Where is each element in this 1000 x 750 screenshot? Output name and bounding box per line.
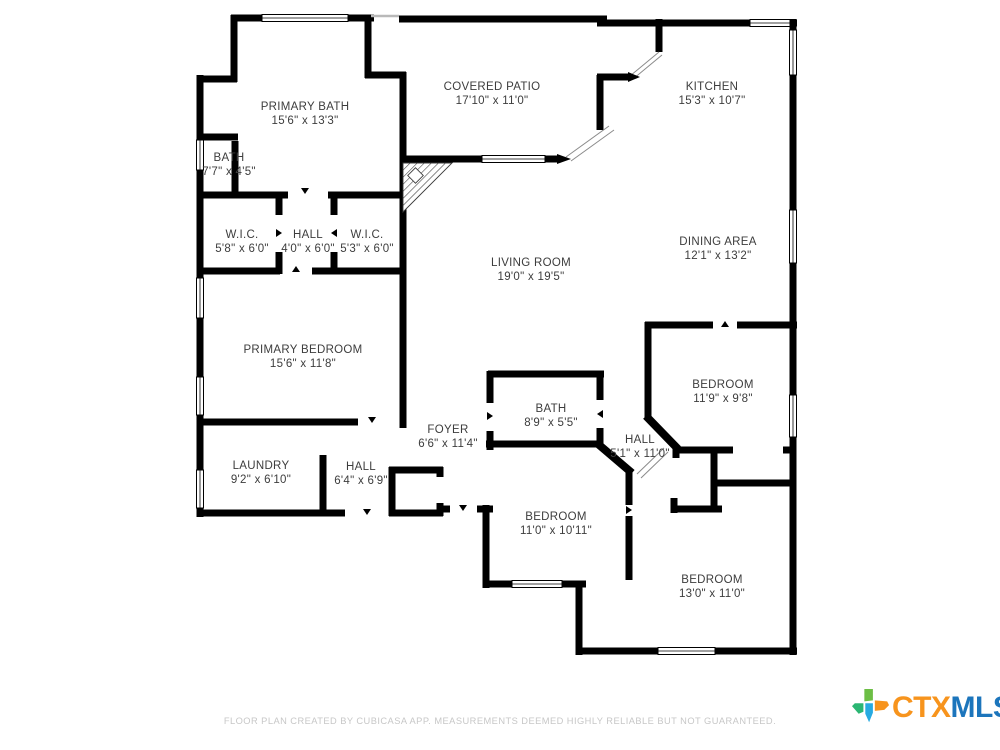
room-label-bedroom-bottom-right: BEDROOM 13'0" x 11'0" [679, 574, 745, 601]
room-dims: 13'0" x 11'0" [679, 588, 745, 602]
disclaimer-text: FLOOR PLAN CREATED BY CUBICASA APP. MEAS… [0, 716, 1000, 726]
room-name: BEDROOM [679, 574, 745, 588]
room-label-dining-area: DINING AREA 12'1" x 13'2" [679, 236, 756, 263]
room-name: W.I.C. [340, 229, 394, 243]
floor-plan-page: PRIMARY BATH 15'6" x 13'3" BATH 7'7" x 4… [0, 0, 1000, 750]
logo-mls-text: MLS [951, 688, 1000, 728]
room-label-wic-left: W.I.C. 5'8" x 6'0" [215, 229, 269, 256]
room-dims: 17'10" x 11'0" [444, 95, 541, 109]
room-dims: 19'0" x 19'5" [491, 271, 571, 285]
window-icon [790, 210, 797, 263]
room-label-kitchen: KITCHEN 15'3" x 10'7" [679, 81, 746, 108]
window-icon [750, 20, 790, 27]
window-icon [197, 470, 204, 508]
window-icon [262, 15, 348, 22]
room-dims: 6'4" x 6'9" [334, 475, 388, 489]
room-name: HALL [281, 229, 335, 243]
room-label-primary-bedroom: PRIMARY BEDROOM 15'6" x 11'8" [243, 344, 362, 371]
room-label-covered-patio: COVERED PATIO 17'10" x 11'0" [444, 81, 541, 108]
room-dims: 12'1" x 13'2" [679, 250, 756, 264]
room-label-primary-bath: PRIMARY BATH 15'6" x 13'3" [261, 101, 350, 128]
room-label-bedroom-middle: BEDROOM 11'0" x 10'11" [520, 511, 592, 538]
door-swing-icon [566, 52, 668, 478]
room-dims: 15'6" x 13'3" [261, 115, 350, 129]
room-dims: 15'3" x 10'7" [679, 95, 746, 109]
room-dims: 4'0" x 6'0" [281, 243, 335, 257]
room-name: PRIMARY BEDROOM [243, 344, 362, 358]
room-dims: 15'6" x 11'8" [243, 358, 362, 372]
logo-ctx-text: CTX [892, 688, 951, 728]
window-icon [197, 278, 204, 318]
window-icon [512, 581, 562, 588]
window-icon [790, 395, 797, 437]
room-name: KITCHEN [679, 81, 746, 95]
room-dims: 5'1" x 11'0" [610, 448, 669, 462]
room-name: BEDROOM [520, 511, 592, 525]
room-label-wic-right: W.I.C. 5'3" x 6'0" [340, 229, 394, 256]
window-icon [482, 156, 545, 163]
room-name: FOYER [418, 424, 477, 438]
room-label-bath-main: BATH 8'9" x 5'5" [524, 403, 578, 430]
room-name: W.I.C. [215, 229, 269, 243]
room-name: LAUNDRY [231, 460, 291, 474]
ctxmls-logo: CTXMLS [852, 688, 1000, 728]
room-dims: 9'2" x 6'10" [231, 474, 291, 488]
room-dims: 6'6" x 11'4" [418, 438, 477, 452]
room-name: DINING AREA [679, 236, 756, 250]
stairs-icon [403, 163, 452, 212]
room-dims: 7'7" x 4'5" [202, 166, 256, 180]
room-name: BATH [524, 403, 578, 417]
room-label-laundry: LAUNDRY 9'2" x 6'10" [231, 460, 291, 487]
window-icon [658, 648, 715, 655]
room-name: COVERED PATIO [444, 81, 541, 95]
window-icon [197, 377, 204, 415]
window-icon [790, 30, 797, 75]
room-name: HALL [334, 461, 388, 475]
room-dims: 11'0" x 10'11" [520, 525, 592, 539]
room-label-foyer: FOYER 6'6" x 11'4" [418, 424, 477, 451]
room-name: BEDROOM [692, 379, 754, 393]
texas-state-icon [852, 688, 890, 728]
room-name: LIVING ROOM [491, 257, 571, 271]
room-label-hall-lower: HALL 6'4" x 6'9" [334, 461, 388, 488]
floor-plan-drawing [0, 0, 1000, 750]
ctxmls-wordmark: CTXMLS [892, 688, 1000, 728]
room-label-living-room: LIVING ROOM 19'0" x 19'5" [491, 257, 571, 284]
room-name: BATH [202, 152, 256, 166]
room-label-hall-right: HALL 5'1" x 11'0" [610, 434, 669, 461]
room-name: HALL [610, 434, 669, 448]
room-dims: 8'9" x 5'5" [524, 417, 578, 431]
room-dims: 5'8" x 6'0" [215, 243, 269, 257]
room-dims: 5'3" x 6'0" [340, 243, 394, 257]
room-dims: 11'9" x 9'8" [692, 393, 754, 407]
room-label-bath-small: BATH 7'7" x 4'5" [202, 152, 256, 179]
room-label-hall-upper: HALL 4'0" x 6'0" [281, 229, 335, 256]
room-label-bedroom-right: BEDROOM 11'9" x 9'8" [692, 379, 754, 406]
room-name: PRIMARY BATH [261, 101, 350, 115]
